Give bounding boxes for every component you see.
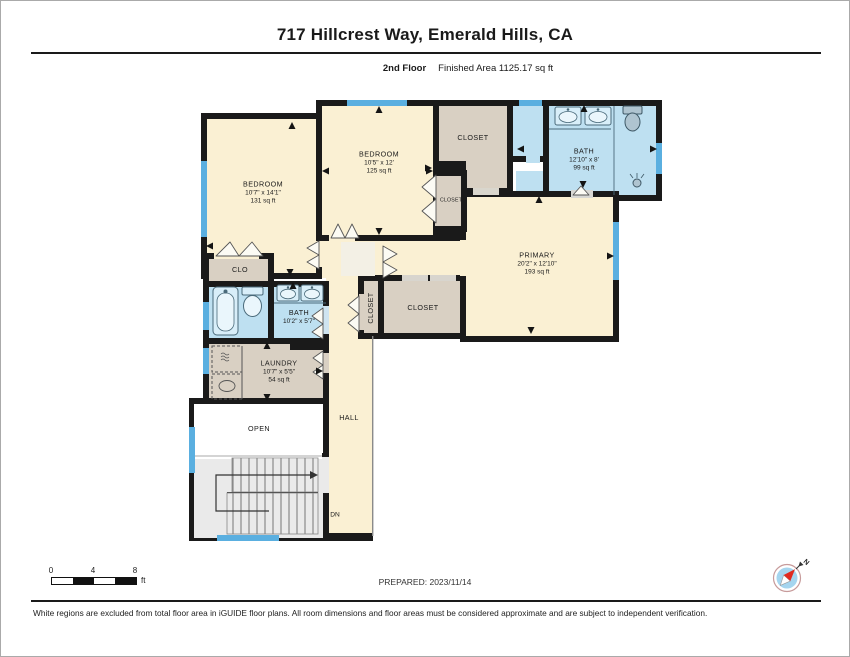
window [613,222,619,280]
stairs-down-label: DN [330,512,340,521]
scale-tick-8: 8 [133,566,137,575]
compass-north-label: N [802,558,810,567]
room-label-open: OPEN [248,424,270,434]
sink-icon [301,285,323,301]
floor-name: 2nd Floor [383,63,426,74]
prepared-date: PREPARED: 2023/11/14 [1,577,849,587]
window [347,100,407,106]
window [189,427,195,473]
room-label-bath-2: BATH 10'2" x 5'7" [283,308,315,326]
finished-area: Finished Area 1125.17 sq ft [438,63,553,74]
bathtub-icon [213,287,238,335]
room-label-clo: CLO [232,265,248,275]
header-divider [31,52,821,54]
scale-tick-4: 4 [91,566,95,575]
toilet-icon [623,106,642,131]
room-label-bedroom-1: BEDROOM 10'7" x 14'1" 131 sq ft [243,179,283,206]
window [203,302,209,330]
room-label-closet-center: CLOSET [407,303,438,313]
sink-icon [555,107,581,125]
room-label-primary: PRIMARY 20'2" x 12'10" 193 sq ft [517,250,556,277]
page-title: 717 Hillcrest Way, Emerald Hills, CA [1,25,849,45]
floorplan-page: 717 Hillcrest Way, Emerald Hills, CA 2nd… [0,0,850,657]
window [519,100,542,106]
room-label-laundry: LAUNDRY 10'7" x 5'5" 54 sq ft [260,358,297,385]
floor-plan: BEDROOM 10'7" x 14'1" 131 sq ft BEDROOM … [189,96,663,541]
disclaimer-text: White regions are excluded from total fl… [33,608,813,618]
room-label-hall: HALL [339,413,359,423]
window [217,535,279,541]
room-label-closet-small: CLOSET [440,197,462,204]
sink-icon [585,107,611,125]
room-label-closet-vert: CLOSET [366,292,376,323]
compass-icon: N [759,549,817,607]
sink-icon [277,285,299,301]
room-label-bedroom-2: BEDROOM 10'5" x 12' 125 sq ft [359,149,399,176]
window [203,348,209,374]
floor-subtitle: 2nd FloorFinished Area 1125.17 sq ft [87,63,849,74]
window [656,143,662,174]
footer-divider [31,600,821,602]
scale-tick-0: 0 [49,566,53,575]
room-label-closet-top: CLOSET [457,133,488,143]
room-label-bath-main: BATH 12'10" x 8' 99 sq ft [569,146,599,173]
window [201,161,207,237]
toilet-icon [242,287,263,317]
